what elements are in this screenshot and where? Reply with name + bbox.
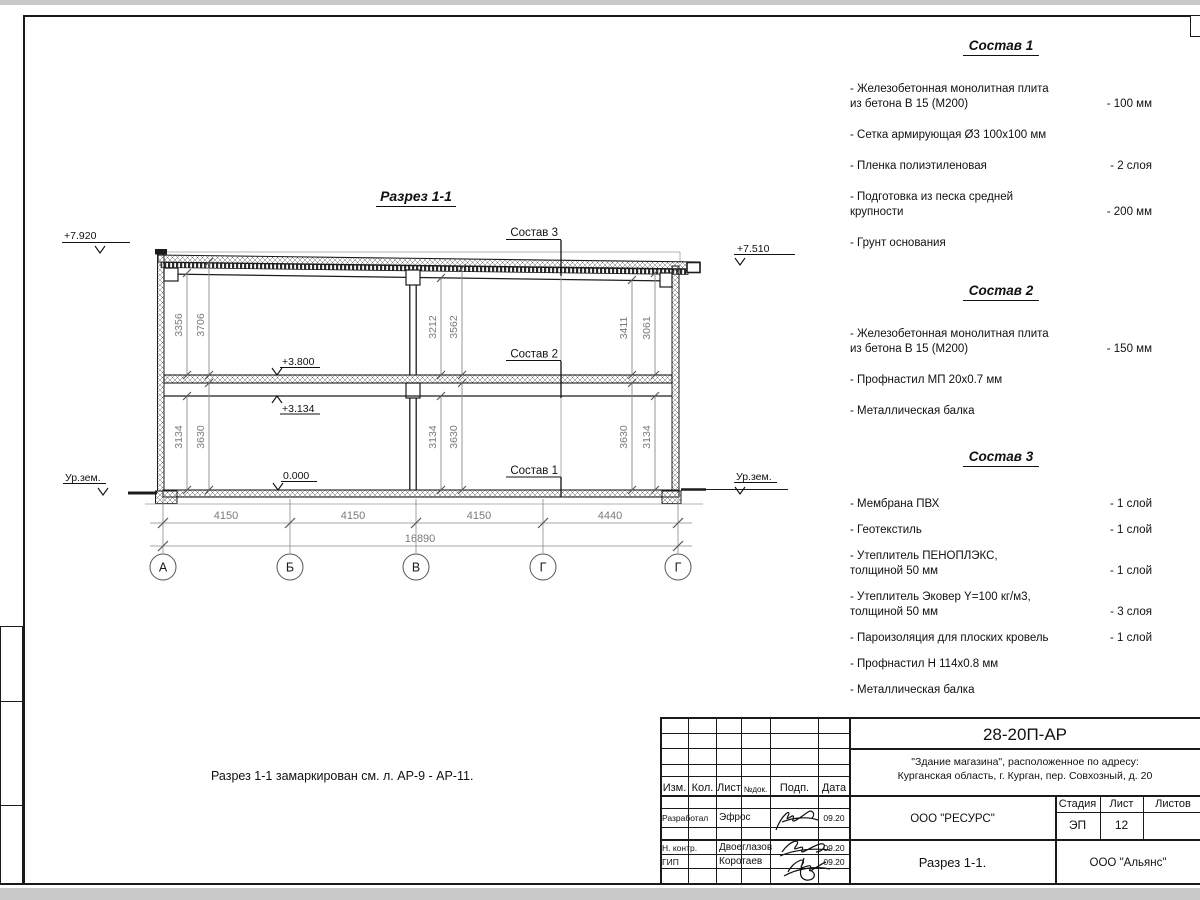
doc-number: 28-20П-АР [850,725,1200,745]
axis-g2: Г [675,561,682,575]
dim-v-g: 4150 [467,510,491,522]
margin-box-3 [0,805,23,884]
svg-text:3562: 3562 [448,315,460,339]
row-role: ГИП [662,857,679,867]
callout-c1: Состав 1 [510,465,558,477]
level-3134: +3.134 [282,403,315,415]
axis-a: А [159,561,168,575]
list-item: - Железобетонная монолитная плита из бет… [850,82,1152,112]
sheet-title: Разрез 1-1. [850,855,1055,870]
level-0000: 0.000 [283,470,309,482]
list-item: - Профнастил Н 114х0.8 мм [850,657,1152,672]
list-item: - Грунт основания [850,236,1152,251]
svg-text:3706: 3706 [195,313,207,337]
list-item: - Подготовка из песка средней крупности-… [850,190,1152,220]
frame-bottom [0,883,1200,885]
col-list: Лист [717,782,741,794]
signature [776,836,834,882]
level-7510: +7.510 [737,243,770,255]
row-role: Разработал [662,813,708,823]
stage-label: Стадия [1055,798,1100,810]
col-data: Дата [819,782,849,794]
axis-bubbles: А Б В Г Г [150,554,691,580]
sheets-label: Листов [1143,798,1200,810]
row-role: Н. контр. [662,843,697,853]
row-name: Коротаев [719,856,762,867]
list-item: - Мембрана ПВХ- 1 слой [850,497,1152,512]
callout-c2: Состав 2 [510,349,558,361]
composition-list-3: Состав 3 - Мембрана ПВХ- 1 слой - Геотек… [850,449,1152,709]
horizontal-dims: 4150 4150 4150 4440 16890 [150,499,692,553]
object-name-line2: Курганская область, г. Курган, пер. Совх… [850,770,1200,782]
stage-value: ЭП [1055,818,1100,832]
dim-total: 16890 [405,533,436,545]
list-item: - Утеплитель Эковер Y=100 кг/м3, толщино… [850,590,1152,620]
margin-box-2 [0,701,23,806]
ground-level-right: Ур.зем. [736,471,772,483]
svg-text:3630: 3630 [448,425,460,449]
sheet-label: Лист [1100,798,1143,810]
list-item: - Пароизоляция для плоских кровель- 1 сл… [850,631,1152,646]
list-item: - Утеплитель ПЕНОПЛЭКС, толщиной 50 мм- … [850,549,1152,579]
drawing-note: Разрез 1-1 замаркирован см. л. АР-9 - АР… [211,769,473,783]
drawing-sheet: Разрез 1-1 [0,5,1200,888]
section-drawing: Состав 3 Состав 2 Состав 1 3356 3706 321… [0,0,820,625]
composition-3-title: Состав 3 [850,449,1152,467]
svg-text:3061: 3061 [641,316,653,340]
list-item: - Геотекстиль- 1 слой [850,523,1152,538]
roof [158,255,700,281]
composition-list-1: Состав 1 - Железобетонная монолитная пли… [850,38,1152,267]
col-podp: Подп. [771,782,818,794]
col-kol: Кол. [689,782,716,794]
composition-2-title: Состав 2 [850,283,1152,301]
margin-box-1 [0,626,23,702]
composition-list-2: Состав 2 - Железобетонная монолитная пли… [850,283,1152,435]
axis-v: В [412,561,420,575]
row-name: Эфрос [719,812,751,823]
list-item: - Металлическая балка [850,683,1152,698]
composition-1-title: Состав 1 [850,38,1152,56]
right-wall [672,266,679,491]
dim-a-b: 4150 [214,510,238,522]
corner-box [1190,15,1200,37]
svg-text:3630: 3630 [195,425,207,449]
col-ndok: №док. [741,785,770,794]
object-name-line1: "Здание магазина", расположенное по адре… [850,756,1200,768]
svg-text:3411: 3411 [618,317,630,340]
signature [772,806,822,836]
level-3800: +3.800 [282,356,315,368]
ground-slab [128,490,788,505]
list-item: - Железобетонная монолитная плита из бет… [850,327,1152,357]
contractor-org: ООО "Альянс" [1056,857,1200,869]
dim-g-g: 4440 [598,510,622,522]
list-item: - Металлическая балка [850,404,1152,419]
callout-c3: Состав 3 [510,227,558,239]
svg-text:3356: 3356 [173,313,185,337]
axis-g1: Г [540,561,547,575]
svg-text:3630: 3630 [618,425,630,449]
svg-text:3134: 3134 [173,425,185,449]
foundation-left [156,491,178,504]
list-item: - Сетка армирующая Ø3 100х100 мм [850,128,1152,143]
axis-b: Б [286,561,294,575]
design-org: ООО "РЕСУРС" [850,813,1055,825]
row-name: Двоеглазов [719,842,772,853]
ground-level-left: Ур.зем. [65,472,101,484]
col-izm: Изм. [661,782,688,794]
list-item: - Профнастил МП 20х0.7 мм [850,373,1152,388]
svg-text:3134: 3134 [641,425,653,449]
dim-b-v: 4150 [341,510,365,522]
list-item: - Пленка полиэтиленовая- 2 слоя [850,159,1152,174]
left-wall [155,249,167,491]
svg-text:3134: 3134 [427,425,439,449]
svg-text:3212: 3212 [427,315,439,339]
level-7920: +7.920 [64,230,97,242]
sheet-number: 12 [1100,818,1143,832]
roof-end-cap [687,263,700,273]
row-date: 09.20 [819,813,849,823]
